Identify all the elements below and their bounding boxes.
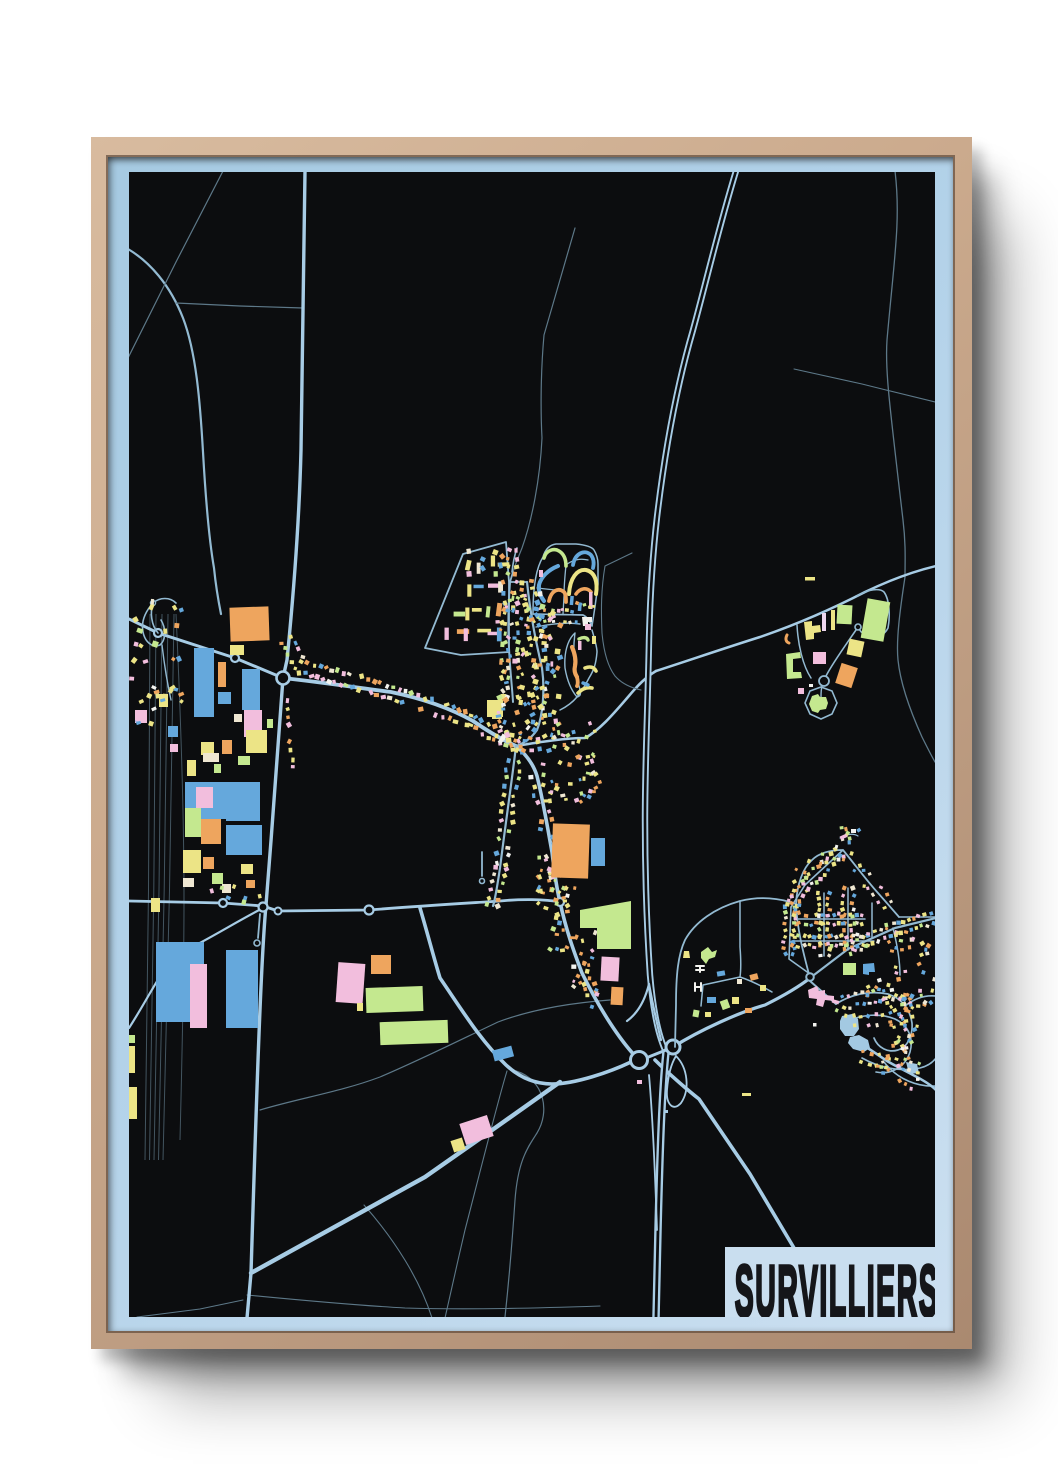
svg-text:SURVILLIERS: SURVILLIERS — [735, 1250, 935, 1317]
